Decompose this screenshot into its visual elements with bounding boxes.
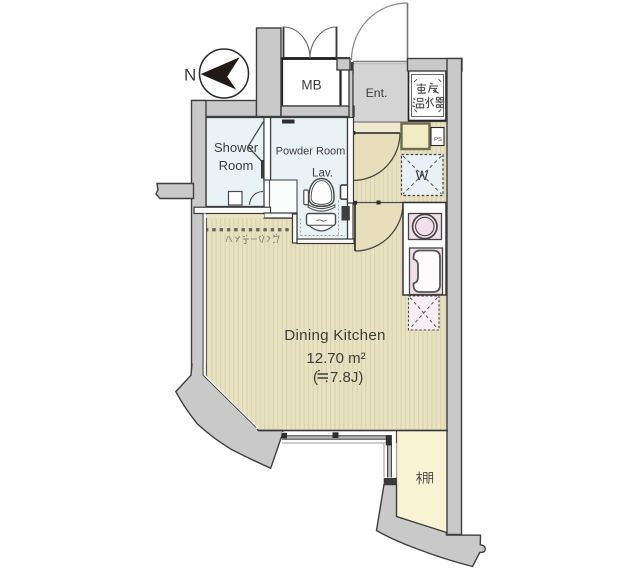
svg-text:(: ( bbox=[313, 369, 318, 386]
svg-text:MB: MB bbox=[301, 78, 321, 93]
svg-text:PS: PS bbox=[434, 137, 442, 143]
svg-text:12.70 m²: 12.70 m² bbox=[306, 350, 365, 367]
svg-text:Ent.: Ent. bbox=[366, 86, 388, 100]
svg-text:W: W bbox=[416, 168, 429, 183]
svg-text:Room: Room bbox=[219, 158, 254, 173]
svg-text:Shower: Shower bbox=[214, 140, 259, 155]
svg-text:N: N bbox=[184, 66, 196, 85]
svg-text:7.8J): 7.8J) bbox=[330, 369, 363, 386]
svg-text:Dining Kitchen: Dining Kitchen bbox=[284, 327, 385, 344]
svg-text:Powder Room: Powder Room bbox=[276, 146, 346, 158]
svg-text:Lav.: Lav. bbox=[312, 168, 333, 180]
